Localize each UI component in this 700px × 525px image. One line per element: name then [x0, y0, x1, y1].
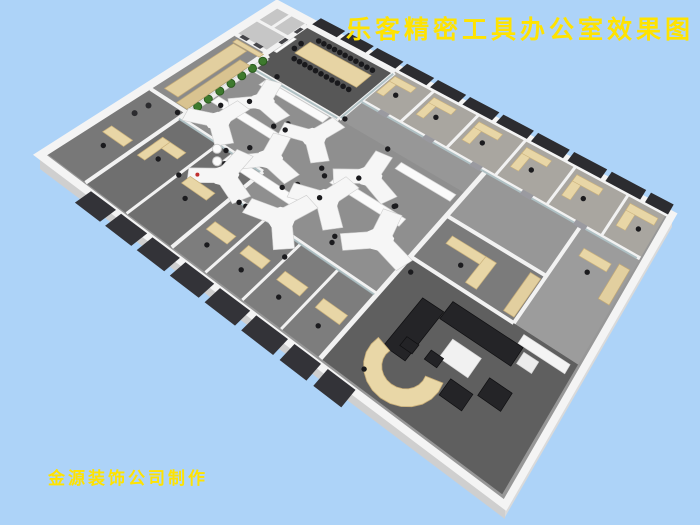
office-chair [247, 145, 252, 150]
office-chair [204, 242, 209, 247]
conference-chairs-top [370, 67, 376, 73]
conference-chairs-bottom [329, 77, 335, 83]
conference-chairs-top [342, 53, 348, 59]
office-chair [316, 323, 321, 328]
office-chair [319, 166, 324, 171]
conference-chairs-top [353, 58, 359, 64]
extinguisher [195, 173, 199, 177]
conference-chairs-bottom [313, 68, 319, 74]
office-chair [393, 203, 398, 208]
office-chair [332, 234, 337, 239]
office-chair [280, 185, 285, 190]
conference-chairs-bottom [346, 87, 352, 93]
office-chair [236, 200, 241, 205]
office-chair [408, 269, 413, 274]
office-chair [101, 143, 106, 148]
office-chair [480, 140, 485, 145]
office-chair [176, 172, 181, 177]
conference-chairs-end [292, 46, 298, 52]
office-render: 乐客精密工具办公室效果图 金源装饰公司制作 [0, 0, 700, 525]
conference-chairs-bottom [340, 84, 346, 90]
conference-chairs-top [326, 44, 332, 50]
plant [259, 57, 267, 65]
conference-chairs-top [359, 61, 365, 67]
office-chair [223, 148, 228, 153]
tub-chair [132, 110, 138, 116]
render-credit: 金源装饰公司制作 [48, 464, 208, 489]
office-chair [322, 173, 327, 178]
office-chair [342, 116, 347, 121]
render-title: 乐客精密工具办公室效果图 [346, 10, 694, 46]
conference-chairs-top [364, 64, 370, 70]
office-chair [385, 146, 390, 151]
office-chair [282, 254, 287, 259]
office-chair [361, 366, 366, 371]
office-chair [433, 115, 438, 120]
conference-chairs-bottom [302, 62, 308, 68]
conference-chairs-bottom [318, 71, 324, 77]
conference-chairs-top [316, 38, 322, 44]
office-chair [458, 263, 463, 268]
office-chair [274, 74, 279, 79]
office-chair [182, 196, 187, 201]
office-chair [317, 195, 322, 200]
office-chair [581, 196, 586, 201]
office-chair [156, 156, 161, 161]
office-chair [356, 175, 361, 180]
stool-table [213, 144, 222, 153]
tub-chair [146, 103, 152, 109]
conference-chairs-top [332, 47, 338, 53]
conference-chairs-top [321, 41, 327, 47]
office-chair [271, 124, 276, 129]
conference-chairs-bottom [297, 59, 303, 65]
office-chair [529, 167, 534, 172]
office-chair [239, 267, 244, 272]
conference-chairs-bottom [324, 74, 330, 80]
conference-chairs-bottom [307, 65, 313, 71]
office-chair [393, 93, 398, 98]
floorplan-render-svg [0, 0, 700, 525]
office-chair [276, 294, 281, 299]
office-chair [218, 103, 223, 108]
office-chair [585, 270, 590, 275]
conference-chairs-bottom [335, 80, 341, 86]
conference-chairs-bottom [291, 56, 297, 62]
office-chair [283, 127, 288, 132]
office-chair [247, 99, 252, 104]
office-chair [636, 226, 641, 231]
stool-table [213, 157, 222, 166]
office-chair [329, 240, 334, 245]
conference-chairs-end [298, 41, 304, 47]
office-chair [175, 110, 180, 115]
conference-chairs-top [337, 50, 343, 56]
conference-chairs-top [348, 56, 354, 62]
